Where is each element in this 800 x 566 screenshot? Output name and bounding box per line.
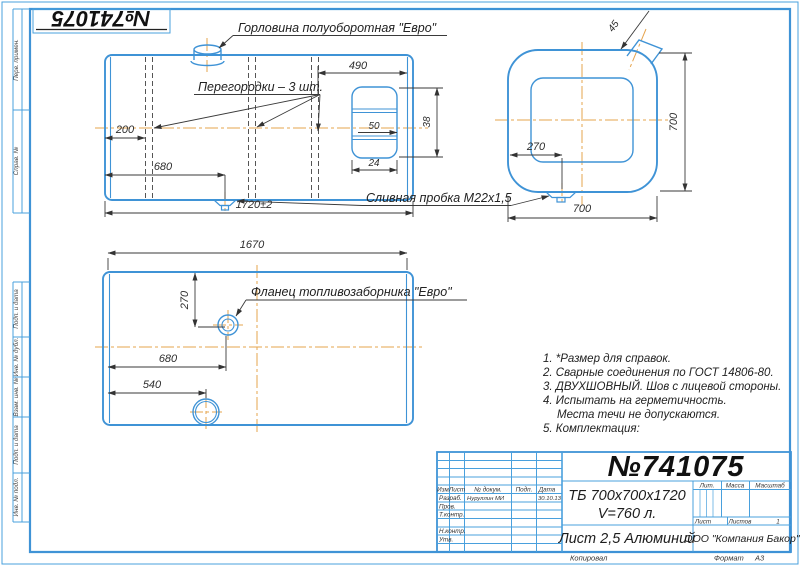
note-line: 3. ДВУХШОВНЫЙ. Шов с лицевой стороны.: [543, 380, 781, 393]
company: ООО "Компания Бакор": [684, 533, 800, 545]
row-utv: Утв.: [438, 537, 453, 544]
technical-notes: 1. *Размер для справок. 2. Сварные соеди…: [542, 353, 781, 435]
dim-680-top: 680: [154, 161, 173, 173]
drain-annotation: Сливная пробка М22х1,5: [366, 191, 512, 205]
margin-field-label: Инв. № дубл.: [12, 338, 20, 377]
dim-50: 50: [368, 121, 380, 132]
filler-neck-side: [627, 40, 662, 64]
flange-annotation: Фланец топливозаборника "Евро": [251, 285, 452, 299]
prop-scale: Масштаб: [755, 482, 785, 490]
dim-1670: 1670: [240, 239, 265, 251]
note-line: 2. Сварные соединения по ГОСТ 14806-80.: [542, 367, 774, 379]
volume: V=760 л.: [598, 506, 657, 522]
side-view-outline: [508, 40, 662, 202]
footer-format-label: Формат: [714, 554, 744, 563]
dim-200: 200: [115, 124, 135, 136]
neck-annotation: Горловина полуоборотная "Евро": [238, 21, 437, 35]
title-block-text: №741075 ТБ 700х700х1720 V=760 л. Лист 2,…: [437, 451, 800, 563]
leader-lines: [154, 36, 549, 317]
dim-680-bottom: 680: [159, 353, 178, 365]
note-line: 1. *Размер для справок.: [543, 353, 671, 365]
dim-700-height: 700: [668, 112, 680, 131]
prop-lit: Лит.: [699, 483, 715, 490]
dim-700-width: 700: [573, 203, 592, 215]
razrab-name: Нуруллин МИ: [467, 496, 505, 502]
dim-270-side: 270: [526, 141, 546, 153]
col-header-doc: № докум.: [474, 486, 502, 494]
note-line: 4. Испытать на герметичность.: [543, 395, 727, 407]
col-header-list: Лист: [448, 487, 465, 494]
margin-field-label: Подп. и дата: [12, 425, 20, 465]
designation: ТБ 700х700х1720: [568, 488, 685, 504]
note-line: Места течи не допускаются.: [557, 409, 720, 421]
dim-270-bottom: 270: [179, 290, 191, 310]
dim-24: 24: [367, 158, 380, 169]
doc-number: №741075: [607, 451, 744, 483]
dim-490: 490: [349, 60, 368, 72]
row-nkontr: Н.контр.: [439, 528, 466, 535]
drain-plug-side: [546, 192, 576, 202]
dim-45-neck: 45: [606, 18, 622, 34]
margin-field-label: Перв. примен.: [13, 39, 20, 81]
col-header-izm: Изм: [437, 487, 449, 494]
footer-format-value: А3: [754, 554, 765, 563]
row-prov: Пров.: [439, 504, 456, 511]
drawing-canvas: №741075 Перв. примен. Справ. № Подп. и д…: [0, 0, 800, 566]
note-line: 5. Комплектация:: [543, 423, 640, 435]
material: Лист 2,5 Алюминий: [558, 531, 695, 547]
row-tkontr: Т.контр.: [439, 512, 464, 519]
margin-field-label: Инв. № подл.: [12, 477, 20, 516]
razrab-date: 30.10.13: [538, 496, 562, 502]
dim-540: 540: [143, 379, 162, 391]
drawing-sheet: №741075 Перв. примен. Справ. № Подп. и д…: [0, 0, 800, 566]
col-header-data: Дата: [538, 487, 556, 494]
margin-field-label: Справ. №: [13, 147, 20, 176]
margin-field-label: Подп. и дата: [12, 289, 20, 329]
prop-sheet: Лист: [694, 519, 711, 526]
dim-38: 38: [422, 116, 433, 128]
prop-mass: Масса: [726, 483, 745, 490]
prop-sheets: Листов: [728, 519, 753, 526]
partitions-annotation: Перегородки – 3 шт.: [198, 80, 323, 94]
col-header-podp: Подп.: [516, 486, 533, 494]
margin-field-label: Взам. инв. №: [13, 377, 20, 416]
corner-stamp-number: №741075: [51, 6, 150, 31]
footer-copied: Копировал: [570, 554, 608, 563]
row-razrab: Разраб.: [439, 494, 462, 502]
prop-sheets-value: 1: [776, 519, 780, 526]
